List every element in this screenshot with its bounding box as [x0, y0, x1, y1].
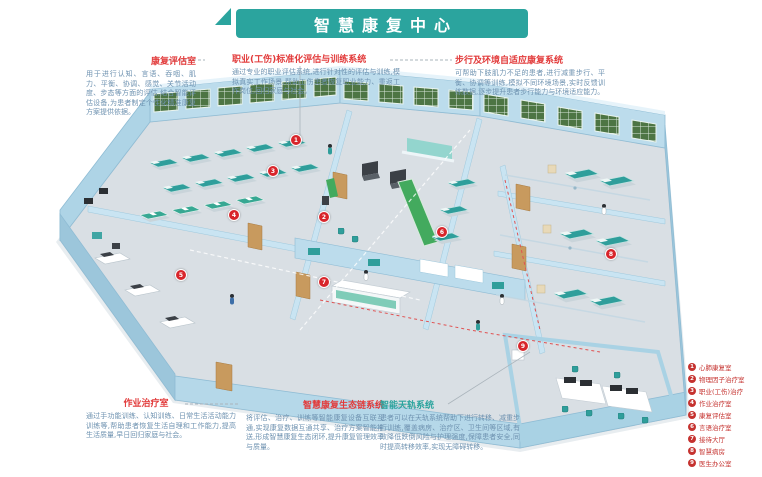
legend-label: 接待大厅 [699, 434, 725, 444]
annotation-title: 康复评估室 [86, 54, 196, 67]
legend-label: 职业(工伤)治疗 [699, 386, 743, 396]
annotation-title: 智能天轨系统 [380, 398, 520, 411]
annotation-body: 通过手功能训练、认知训练、日常生活活动能力训练等,帮助患者恢复生活自理和工作能力… [86, 412, 236, 441]
annotation-body: 患者可以在天轨系统帮助下进行转移、减重步行训练,覆盖病房、治疗区、卫生间等区域,… [380, 414, 520, 452]
legend-label: 物理因子治疗室 [699, 374, 745, 384]
annotation-body: 可帮助下肢肌力不足的患者,进行减重步行、平衡、协调等训练,模拟不同环境场景,实时… [455, 69, 605, 98]
room-marker-1: 1 [290, 134, 302, 146]
legend-number-badge: 9 [688, 459, 696, 467]
room-marker-6: 6 [436, 226, 448, 238]
legend-label: 心肺康复室 [699, 362, 732, 372]
legend-label: 康复评估室 [699, 410, 732, 420]
annotation-title: 作业治疗室 [86, 396, 236, 409]
annotation-body: 将评估、治疗、训练等智能康复设备互联互通,实现康复数据互通共享、治疗方案智能推送… [246, 414, 384, 452]
legend-number-badge: 5 [688, 411, 696, 419]
legend-number-badge: 7 [688, 435, 696, 443]
legend-item: 6言语治疗室 [688, 421, 745, 433]
room-marker-4: 4 [228, 209, 240, 221]
legend-item: 9医生办公室 [688, 457, 745, 469]
annotation-occupational-therapy: 作业治疗室 通过手功能训练、认知训练、日常生活活动能力训练等,帮助患者恢复生活自… [86, 396, 236, 441]
legend-number-badge: 4 [688, 399, 696, 407]
legend-item: 3职业(工伤)治疗 [688, 385, 745, 397]
infographic-canvas: 智慧康复中心 康复评估室 用于进行认知、言语、吞咽、肌力、平衡、协调、感觉、关节… [0, 0, 762, 477]
legend-number-badge: 8 [688, 447, 696, 455]
legend-number-badge: 2 [688, 375, 696, 383]
legend-item: 8智慧病房 [688, 445, 745, 457]
legend-item: 7接待大厅 [688, 433, 745, 445]
legend-label: 作业治疗室 [699, 398, 732, 408]
annotation-title: 智慧康复生态链系统 [246, 398, 384, 411]
annotation-title: 职业(工伤)标准化评估与训练系统 [232, 52, 400, 65]
annotation-body: 通过专业的职业评估系统,进行针对性的评估与训练,模拟真实工作场景,帮助工伤患者恢… [232, 68, 400, 97]
legend-item: 5康复评估室 [688, 409, 745, 421]
legend-number-badge: 3 [688, 387, 696, 395]
annotation-walking-system: 步行及环境自适应康复系统 可帮助下肢肌力不足的患者,进行减重步行、平衡、协调等训… [455, 53, 605, 98]
room-marker-5: 5 [175, 269, 187, 281]
legend-label: 言语治疗室 [699, 422, 732, 432]
room-marker-7: 7 [318, 276, 330, 288]
legend-item: 1心肺康复室 [688, 361, 745, 373]
room-marker-9: 9 [517, 340, 529, 352]
annotation-occupational-system: 职业(工伤)标准化评估与训练系统 通过专业的职业评估系统,进行针对性的评估与训练… [232, 52, 400, 97]
legend-label: 智慧病房 [699, 446, 725, 456]
annotation-body: 用于进行认知、言语、吞咽、肌力、平衡、协调、感觉、关节活动度、步态等方面的评估,… [86, 70, 196, 118]
annotation-title: 步行及环境自适应康复系统 [455, 53, 605, 66]
annotation-ceiling-track-system: 智能天轨系统 患者可以在天轨系统帮助下进行转移、减重步行训练,覆盖病房、治疗区、… [380, 398, 520, 452]
room-marker-2: 2 [318, 211, 330, 223]
room-marker-8: 8 [605, 248, 617, 260]
legend-number-badge: 6 [688, 423, 696, 431]
room-marker-3: 3 [267, 165, 279, 177]
legend-label: 医生办公室 [699, 458, 732, 468]
annotation-rehab-assessment: 康复评估室 用于进行认知、言语、吞咽、肌力、平衡、协调、感觉、关节活动度、步态等… [86, 54, 196, 118]
annotation-smart-eco-system: 智慧康复生态链系统 将评估、治疗、训练等智能康复设备互联互通,实现康复数据互通共… [246, 398, 384, 452]
room-legend: 1心肺康复室 2物理因子治疗室 3职业(工伤)治疗 4作业治疗室 5康复评估室 … [688, 361, 745, 469]
legend-item: 4作业治疗室 [688, 397, 745, 409]
legend-number-badge: 1 [688, 363, 696, 371]
legend-item: 2物理因子治疗室 [688, 373, 745, 385]
